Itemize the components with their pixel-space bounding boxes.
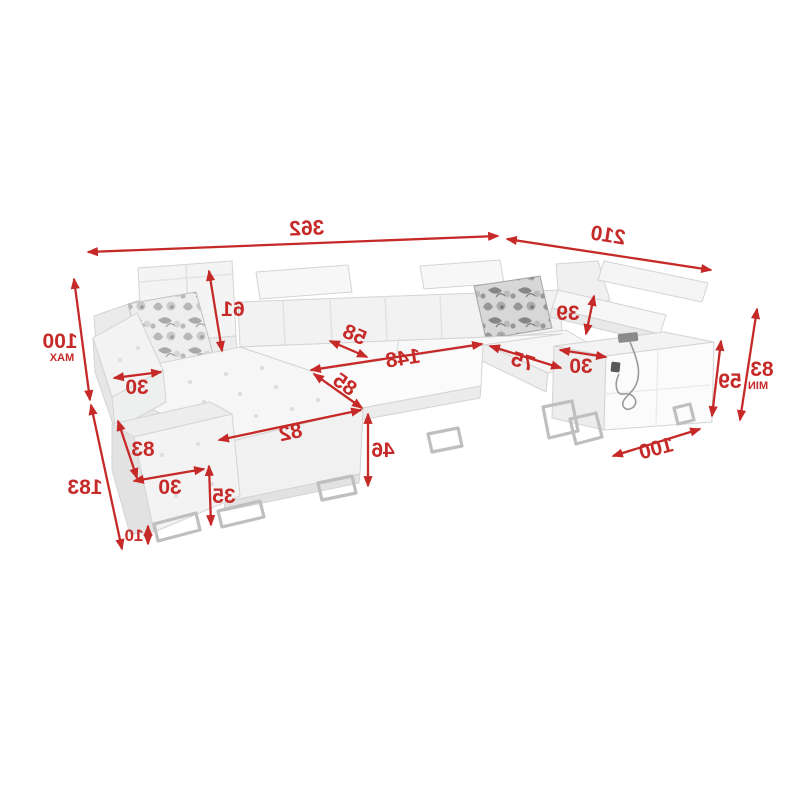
- sled-leg-4: [428, 428, 462, 452]
- dim-total-width-label: 362: [289, 216, 325, 240]
- dim-right-module-length: 100: [613, 429, 700, 464]
- sofa: [93, 260, 714, 541]
- dim-back-height-min-note: MIN: [748, 380, 768, 392]
- right-floral-pillow-shade: [474, 276, 552, 339]
- armrest-tuft-1: [118, 358, 122, 362]
- dim-chaise-width-label: 82: [277, 419, 305, 446]
- dim-back-above-seat-right-label: 39: [556, 302, 579, 325]
- usb-port: [610, 362, 620, 373]
- dim-armrest-width-right-label: 30: [569, 355, 592, 378]
- armrest-tuft-2: [136, 346, 140, 350]
- dim-seat-height: 46: [368, 414, 395, 486]
- middle-headrest-pad-1: [256, 265, 352, 299]
- dim-right-depth-label: 210: [589, 221, 627, 249]
- dim-back-height-max-label: 100: [42, 330, 77, 353]
- dim-total-width: 362: [88, 216, 498, 252]
- dim-leg-height-label: 10: [125, 526, 144, 545]
- dim-armrest-height-right: 59: [712, 341, 742, 416]
- dim-back-height-max: 100 MAX: [42, 279, 90, 400]
- dim-back-height-max-note: MAX: [49, 352, 74, 364]
- dim-seat-height-label: 46: [371, 439, 394, 462]
- dim-left-depth-label: 183: [67, 476, 102, 499]
- dim-armrest-height-right-label: 59: [718, 370, 741, 393]
- dim-bench-width-label: 30: [158, 476, 181, 499]
- dim-right-module-length-label: 100: [636, 433, 676, 464]
- dim-headrest-height-label: 61: [221, 298, 245, 321]
- dim-back-height-min: 83 MIN: [740, 309, 774, 420]
- sofa-dimension-drawing: 362 210 100 MAX 183 61 30 83: [0, 0, 800, 800]
- dim-back-height-min-label: 83: [750, 358, 773, 381]
- diagram-canvas: 362 210 100 MAX 183 61 30 83: [0, 0, 800, 800]
- dim-bench-height-label: 83: [131, 438, 154, 461]
- dim-base-height-label: 35: [212, 485, 236, 508]
- dim-armrest-width-left-label: 30: [125, 376, 148, 399]
